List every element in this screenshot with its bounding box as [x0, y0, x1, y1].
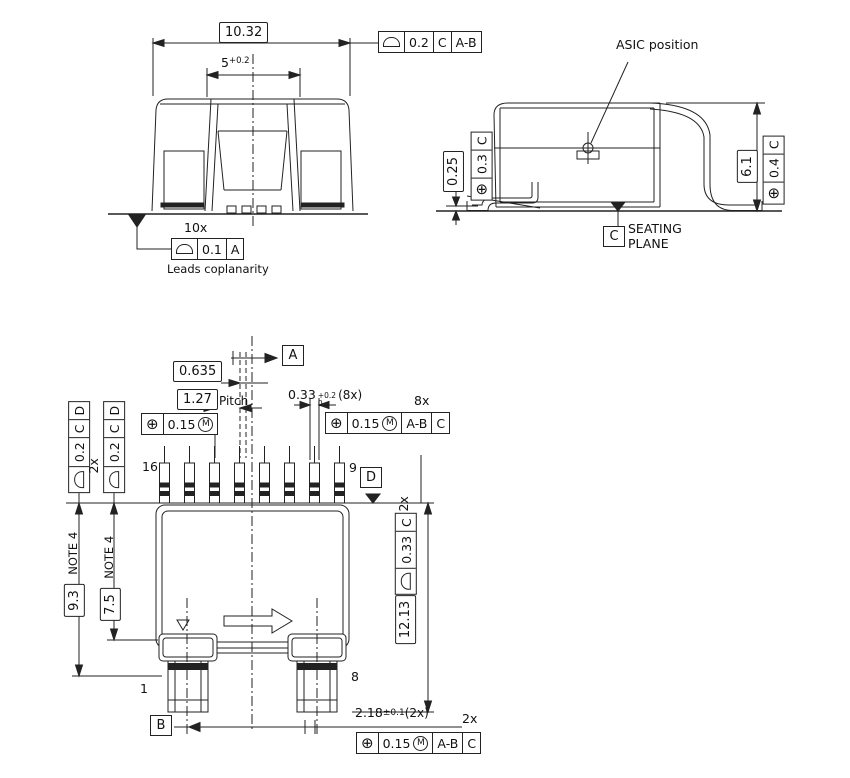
drawing-lineart [0, 0, 850, 778]
position-symbol-icon: ⊕ [475, 183, 490, 196]
fcf-edge-qty: 2x [396, 494, 412, 514]
fcf-tabs-qty: 2x [462, 712, 477, 726]
fcf-pitch: ⊕ 0.15M [141, 413, 218, 435]
profile-of-surface-icon [109, 471, 120, 488]
leads-count: 10x [184, 221, 207, 235]
fcf-leads-position: ⊕ 0.15M A-B C [325, 412, 450, 434]
orientation-arrow [224, 609, 292, 633]
pin-number-16: 16 [142, 460, 158, 474]
position-symbol-icon: ⊕ [767, 187, 782, 200]
datum-triangle [366, 494, 380, 503]
pin-number-9: 9 [349, 461, 357, 475]
fcf-top-profile: 0.2 C A-B [378, 31, 482, 53]
position-symbol-icon: ⊕ [146, 417, 159, 432]
fcf-leads-coplanarity: 0.1 A [171, 238, 244, 260]
position-symbol-icon: ⊕ [330, 416, 343, 431]
pin-number-1: 1 [140, 682, 148, 696]
dim-body-len: 9.3 [62, 580, 86, 620]
fcf-side-profile: 0.2 C D [67, 404, 91, 490]
profile-of-surface-icon [401, 573, 412, 590]
datum-b: B [150, 715, 172, 736]
fcf-side-profile: 0.2 C D [102, 404, 126, 490]
mmc-modifier-icon: M [413, 736, 428, 751]
fcf-standoff: ⊕ 0.3 C [470, 124, 494, 208]
fcf-leads-qty: 8x [414, 394, 429, 408]
fcf-sides-qty: 2x [86, 456, 102, 476]
dim-inner-width: 5+0.2 [221, 56, 250, 70]
datum-d: D [360, 467, 382, 488]
profile-of-surface-icon [383, 37, 400, 48]
seating-plane-label: SEATING [628, 222, 682, 236]
leads-note: Leads coplanarity [167, 263, 269, 276]
datum-c: C [603, 226, 625, 247]
mmc-modifier-icon: M [382, 416, 397, 431]
dim-pitch: 1.27 [177, 389, 218, 410]
position-symbol-icon: ⊕ [361, 736, 374, 751]
seating-plane-label: PLANE [628, 237, 669, 251]
profile-of-surface-icon [74, 471, 85, 488]
mmc-modifier-icon: M [198, 417, 213, 432]
dim-center-offset: 0.635 [173, 361, 222, 382]
pin-number-8: 8 [351, 670, 359, 684]
dim-body-len-note: NOTE 4 [64, 524, 82, 582]
datum-a: A [282, 345, 304, 366]
datum-triangle [189, 723, 200, 732]
dim-height: 6.1 [736, 146, 758, 186]
dim-overall-width: 10.32 [219, 22, 268, 43]
pitch-label: Pitch [219, 395, 248, 408]
fcf-height: ⊕ 0.4 C [762, 128, 786, 212]
profile-of-surface-icon [176, 244, 193, 255]
dim-standoff: 0.25 [442, 147, 464, 195]
dim-inner-len: 7.5 [98, 584, 122, 624]
dim-overall-len: 12.13 [393, 594, 419, 644]
datum-triangle [129, 215, 145, 227]
fcf-tabs-position: ⊕ 0.15M A-B C [356, 732, 481, 754]
fcf-edge-profile: 0.33 C [394, 516, 418, 592]
dim-inner-len-note: NOTE 4 [100, 528, 118, 586]
dim-tab: 2.18±0.1(2x) [355, 706, 429, 720]
dim-lead-width: 0.33+0.20(8x) [288, 388, 362, 407]
datum-triangle [265, 354, 277, 363]
asic-position-label: ASIC position [616, 38, 698, 52]
technical-drawing-page: 10.32 5+0.2 0.2 C A-B 10x 0.1 A Leads co… [0, 0, 850, 778]
